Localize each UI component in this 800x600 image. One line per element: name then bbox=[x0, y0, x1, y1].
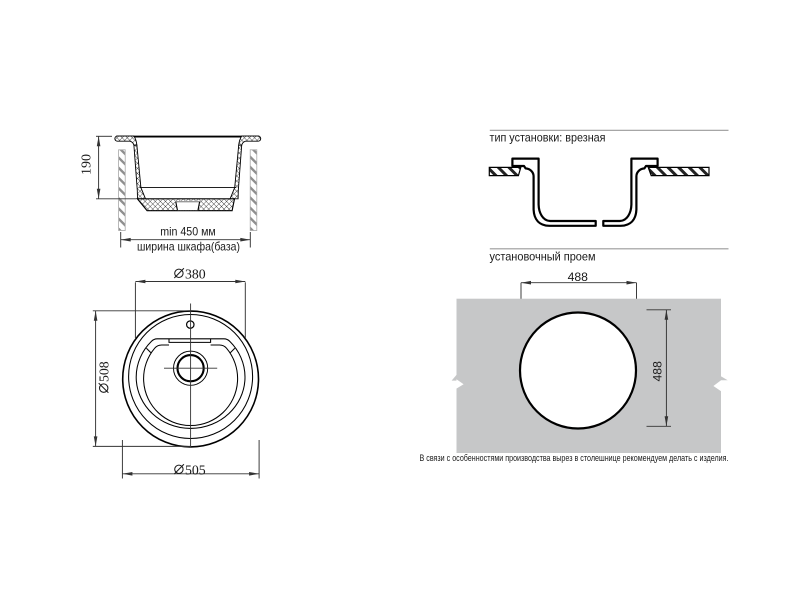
svg-text:488: 488 bbox=[651, 361, 665, 382]
svg-text:В связи с особенностями произв: В связи с особенностями производства выр… bbox=[420, 453, 729, 463]
svg-text:508: 508 bbox=[97, 361, 112, 382]
svg-text:380: 380 bbox=[185, 266, 206, 281]
svg-text:190: 190 bbox=[80, 154, 95, 175]
svg-text:установочный проем: установочный проем bbox=[490, 251, 596, 264]
svg-text:488: 488 bbox=[568, 270, 589, 284]
svg-text:тип установки: врезная: тип установки: врезная bbox=[490, 132, 606, 145]
svg-text:ширина шкафа(база): ширина шкафа(база) bbox=[137, 240, 240, 254]
svg-text:min 450 мм: min 450 мм bbox=[160, 225, 216, 239]
svg-text:505: 505 bbox=[185, 462, 206, 477]
